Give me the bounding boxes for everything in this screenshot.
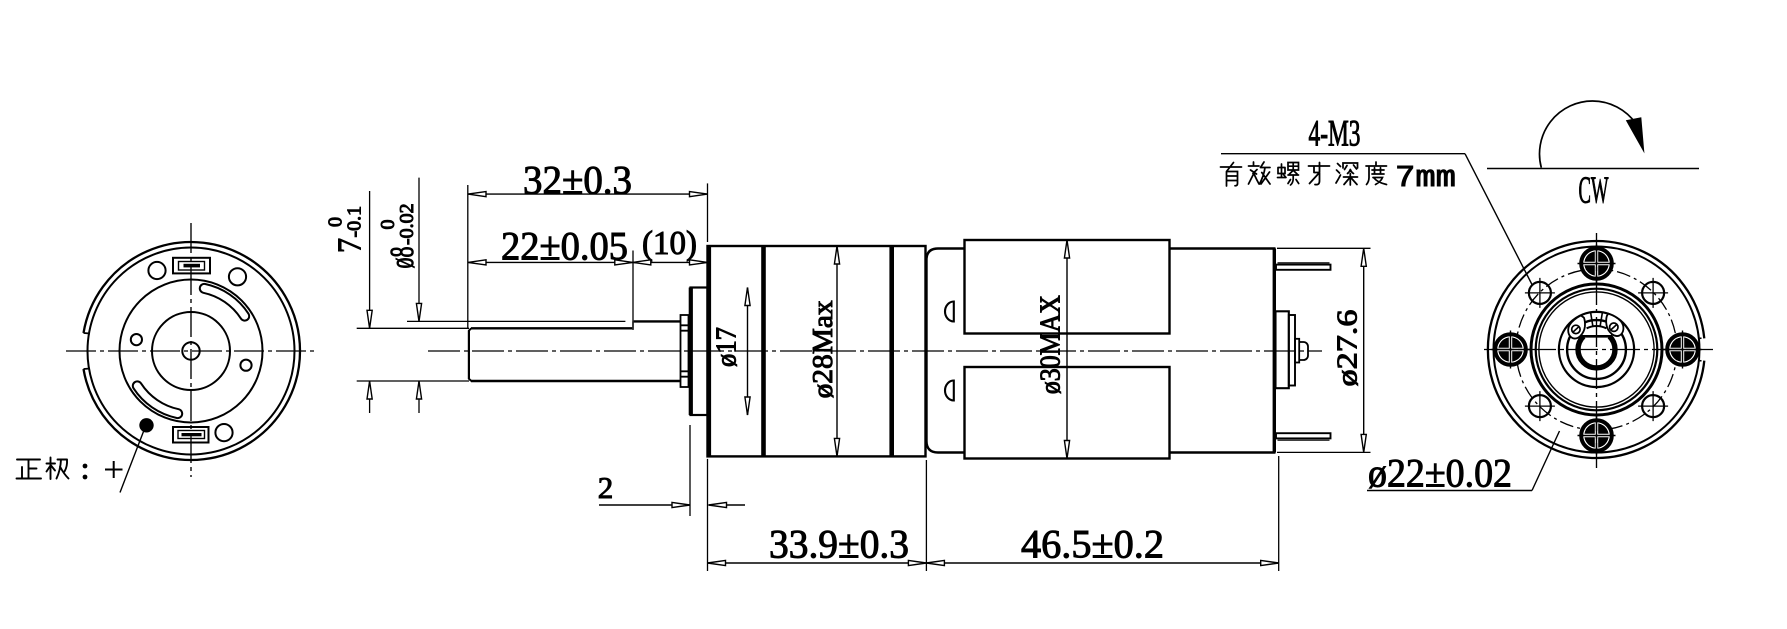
svg-text:CW: CW [1579,170,1609,212]
svg-text:7mm: 7mm [1395,161,1456,196]
svg-text:7: 7 [332,238,369,253]
svg-text:ø27.6: ø27.6 [1332,310,1364,387]
svg-text:-0.1: -0.1 [344,206,366,238]
svg-text:2: 2 [598,470,614,505]
svg-text:-0.02: -0.02 [396,203,418,245]
svg-text:46.5±0.2: 46.5±0.2 [1021,522,1164,567]
svg-text:4-M3: 4-M3 [1309,114,1361,155]
svg-text:ø30MAX: ø30MAX [1035,295,1067,394]
svg-text:ø8: ø8 [384,247,421,269]
svg-text:ø17: ø17 [712,327,743,367]
svg-text:(10): (10) [642,225,697,262]
svg-text:22±0.05: 22±0.05 [501,224,628,269]
svg-text:ø22±0.02: ø22±0.02 [1368,451,1512,496]
svg-text:32±0.3: 32±0.3 [523,158,632,203]
svg-text:ø28Max: ø28Max [807,300,839,398]
svg-text:33.9±0.3: 33.9±0.3 [769,522,909,567]
